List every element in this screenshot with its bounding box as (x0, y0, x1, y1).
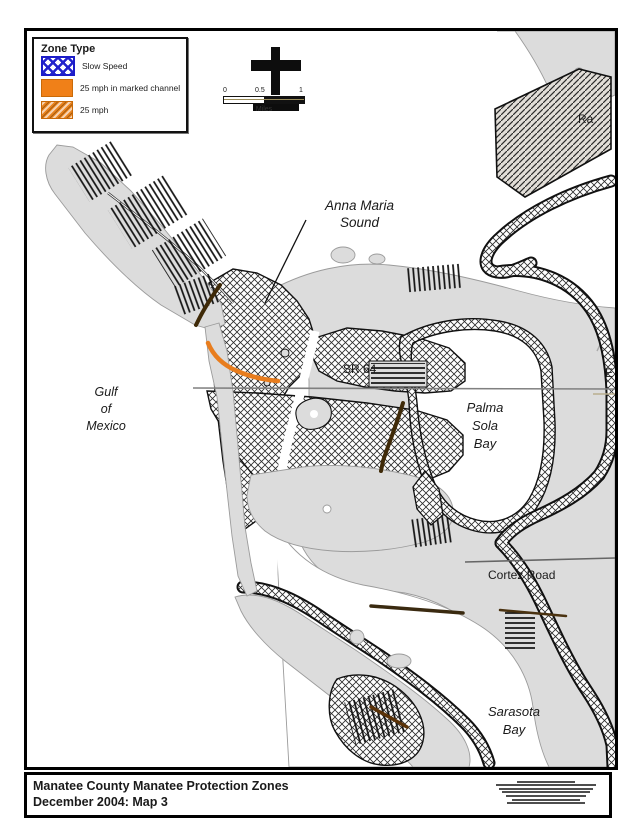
page: { "legend": { "title": "Zone Type", "ite… (0, 0, 639, 830)
legend-item-label: Slow Speed (82, 61, 127, 71)
label-sarasota-bay: Sarasota Bay (469, 703, 559, 739)
north-arrow-cross (251, 60, 301, 71)
label-line: Sarasota (469, 703, 559, 721)
legend-item-label: 25 mph in marked channel (80, 83, 180, 93)
label-line: Bay (469, 721, 559, 739)
label-cortez-road: Cortez Road (488, 567, 555, 584)
label-line: Bay (449, 435, 521, 453)
label-line: Gulf (71, 384, 141, 401)
title-bar: Manatee County Manatee Protection Zones … (24, 772, 612, 818)
fine-print-line (496, 784, 596, 786)
legend-item-marked-channel: 25 mph in marked channel (41, 79, 186, 96)
scale-bar: 0 0.5 1 Miles (223, 87, 305, 113)
fine-print-line (502, 791, 590, 793)
canal-combs (406, 264, 462, 293)
fine-print-line (499, 788, 593, 790)
label-e-truncated: E (605, 365, 613, 382)
scale-bar-dark-half (264, 97, 304, 103)
legend-box: Zone Type Slow Speed 25 mph in marked ch… (32, 37, 188, 133)
scale-tick: 1 (299, 87, 303, 94)
map-canvas: Zone Type Slow Speed 25 mph in marked ch… (24, 28, 618, 770)
25mph-swatch-icon (41, 101, 73, 119)
map-title: Manatee County Manatee Protection Zones … (33, 778, 289, 810)
label-sr64: SR 64 (343, 361, 376, 378)
legend-title: Zone Type (41, 43, 186, 55)
legend-item-25mph: 25 mph (41, 101, 186, 118)
scale-unit-label: Miles (223, 106, 305, 113)
title-line-1: Manatee County Manatee Protection Zones (33, 778, 289, 794)
label-line: of (71, 401, 141, 418)
marked-channel-swatch-icon (41, 79, 73, 97)
label-gulf-of-mexico: Gulf of Mexico (71, 384, 141, 435)
label-anna-maria-sound: Anna Maria Sound (297, 197, 422, 231)
fine-print-block (491, 779, 601, 813)
road-sr64 (193, 388, 615, 389)
scale-ticks: 0 0.5 1 (223, 87, 305, 96)
fine-print-line (506, 795, 586, 797)
slow-speed-swatch-icon (41, 56, 75, 76)
label-palma-sola-bay: Palma Sola Bay (449, 399, 521, 453)
scale-bar-midline (224, 99, 304, 100)
label-line: Sola (449, 417, 521, 435)
fine-print-line (512, 799, 580, 801)
scale-tick: 0.5 (255, 87, 265, 94)
label-line: Anna Maria (297, 197, 422, 214)
fine-print-line (507, 802, 585, 804)
scale-bar-graphic (223, 96, 305, 104)
title-line-2: December 2004: Map 3 (33, 794, 289, 810)
legend-item-label: 25 mph (80, 105, 108, 115)
label-line: Palma (449, 399, 521, 417)
label-ra-truncated: Ra (578, 111, 593, 128)
label-line: Sound (297, 214, 422, 231)
legend-item-slow-speed: Slow Speed (41, 57, 186, 74)
label-line: Mexico (71, 418, 141, 435)
scale-tick: 0 (223, 87, 227, 94)
fine-print-line (517, 781, 575, 783)
